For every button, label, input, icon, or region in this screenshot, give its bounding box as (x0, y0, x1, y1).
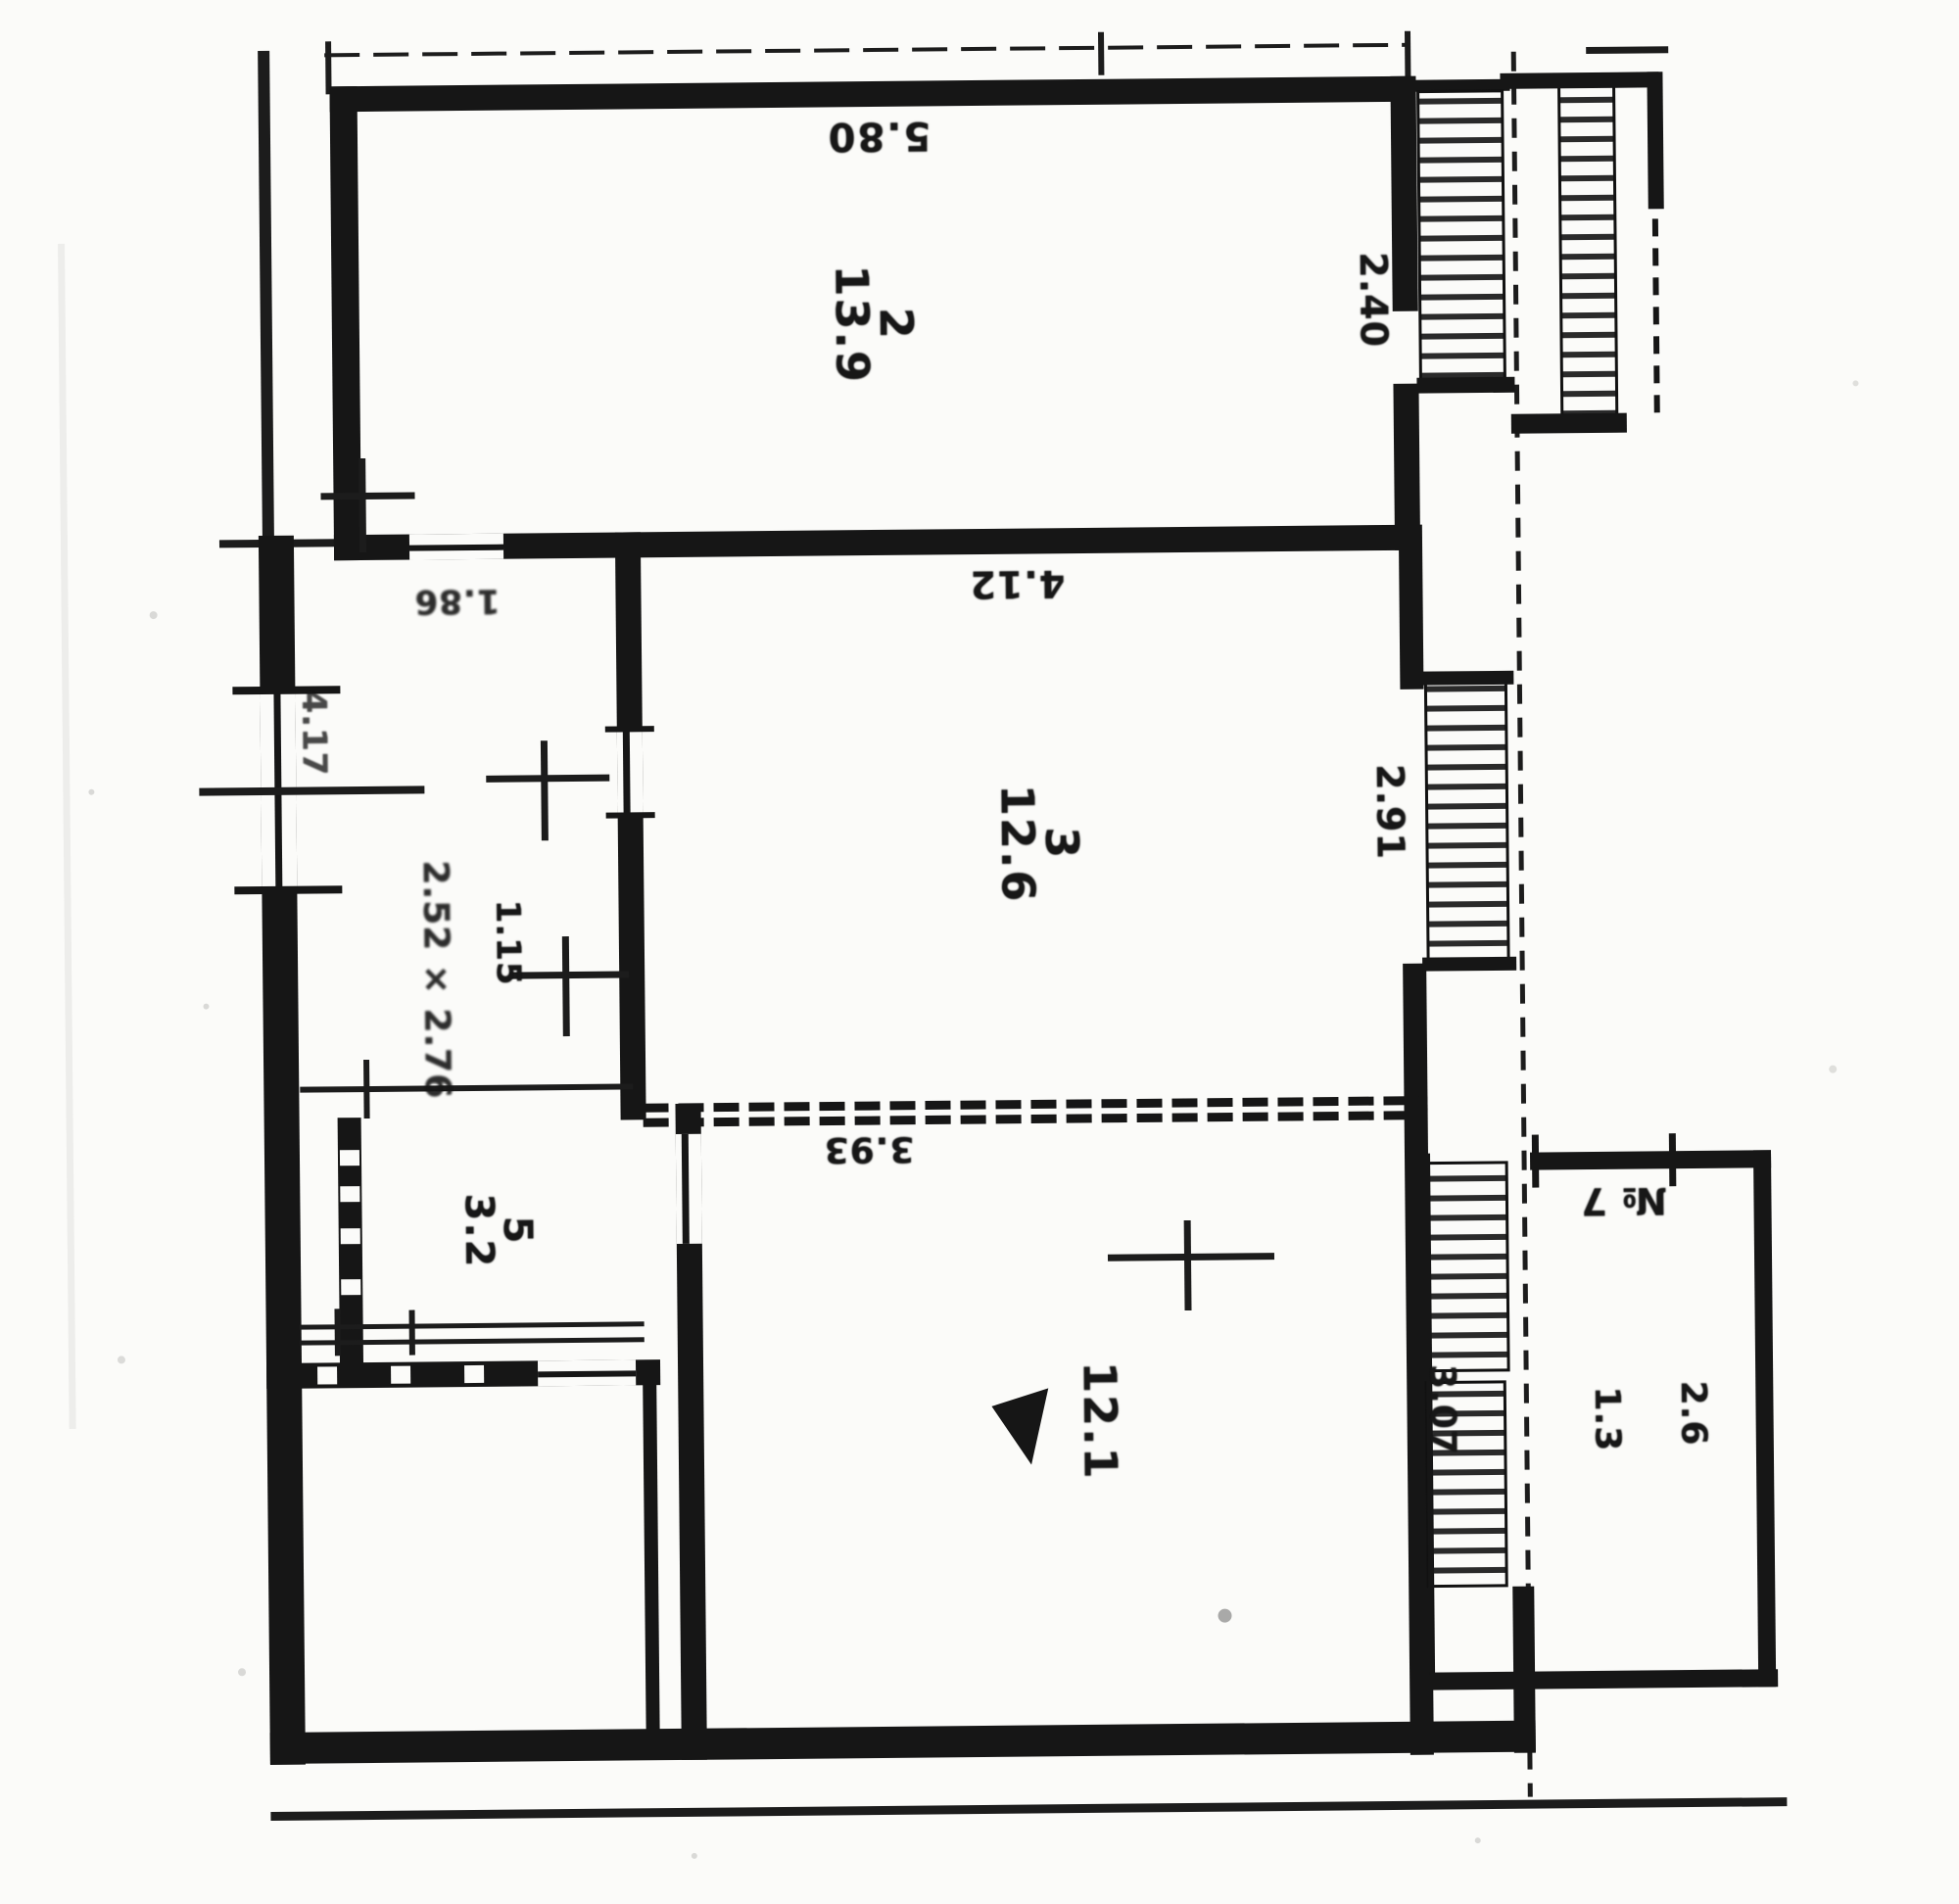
dim-value: 4.12 (969, 562, 1065, 606)
scanned-floor-plan-page: 5.80 2 13.9 2.40 4.12 3 12.6 2.91 3.93 1… (0, 0, 1959, 1904)
annex-number: № 7 (1580, 1179, 1667, 1223)
window-icon (1425, 683, 1508, 964)
scan-artifacts (58, 226, 1873, 1865)
dim-room1-right: 3.07 (1424, 1364, 1459, 1455)
room-area: 3.2 (458, 1193, 498, 1268)
dim-room1-width: 3.93 (823, 1131, 914, 1166)
window-icon (1559, 86, 1617, 420)
room-number: 3 (1038, 784, 1083, 903)
annex-dim-2: 2.6 (1676, 1380, 1711, 1446)
dim-value: 5.80 (826, 113, 931, 159)
dim-value: 1.3 (1587, 1386, 1628, 1452)
wall-bottom-exterior (270, 1721, 1536, 1764)
dim-hall-size: 2.52 × 2.76 (417, 860, 454, 1099)
bottom-section-line (270, 1797, 1787, 1821)
wall-room3-room1-dashed (644, 1101, 1422, 1123)
room-number: 5 (497, 1193, 536, 1268)
annex-number-label: № 7 (1580, 1182, 1667, 1219)
dim-value: 2.40 (1352, 252, 1396, 348)
right-property-line (1513, 52, 1530, 1797)
room-area: 13.9 (829, 264, 874, 384)
window-icon (1418, 91, 1505, 386)
ink-dot (1218, 1609, 1231, 1623)
wall-hall-room3 (615, 532, 646, 1119)
room-label-5: 5 3.2 (458, 1193, 536, 1269)
dim-left-wall: 4.17 (297, 690, 330, 776)
window-icon (1428, 1163, 1508, 1371)
dim-value: 3.07 (1422, 1364, 1463, 1455)
dim-value: 2.52 × 2.76 (415, 860, 457, 1099)
room-label-2: 2 13.9 (829, 264, 918, 384)
dim-value: 2.6 (1673, 1380, 1714, 1446)
room-area: 12.6 (994, 785, 1039, 904)
wall-room3-right (1399, 525, 1424, 690)
dim-room3-width: 4.12 (969, 565, 1065, 602)
dim-value: 4.17 (294, 690, 334, 776)
room-number: 2 (873, 264, 918, 384)
dim-room2-window: 2.40 (1355, 252, 1392, 348)
windows (1413, 71, 1677, 1586)
floor-plan: 5.80 2 13.9 2.40 4.12 3 12.6 2.91 3.93 1… (0, 0, 1959, 1904)
dim-top-width: 5.80 (826, 116, 931, 155)
room-label-3: 3 12.6 (994, 784, 1083, 903)
dim-value: 1.86 (413, 581, 500, 621)
dim-hall-passage: 1.15 (491, 900, 524, 986)
room-area: 12.1 (1076, 1361, 1122, 1481)
left-page-line (258, 51, 274, 541)
triangle-icon (991, 1388, 1049, 1465)
dim-value: 2.91 (1368, 764, 1412, 860)
dim-value: 1.15 (488, 899, 528, 985)
wall-room2-left (329, 86, 361, 560)
dim-value: 3.93 (823, 1128, 914, 1169)
wall-top (329, 76, 1411, 113)
dim-room3-window: 2.91 (1371, 764, 1409, 860)
room-label-1: 12.1 (1076, 1361, 1122, 1481)
floor-plan-drawing (0, 0, 1959, 1904)
annex-dim-1: 1.3 (1590, 1386, 1625, 1452)
dim-hall-top: 1.86 (413, 584, 500, 617)
